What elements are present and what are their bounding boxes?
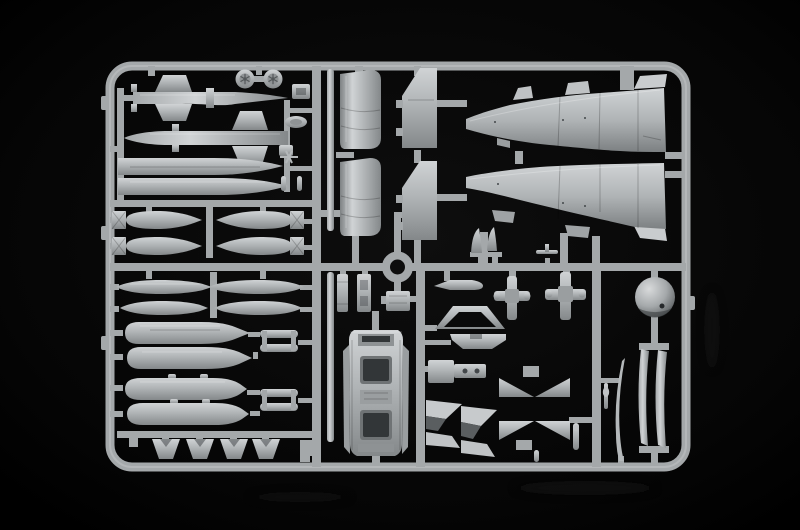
horizontal-runner-mid-center [321, 263, 383, 271]
bomb-mini-runner-2 [210, 272, 217, 318]
sprue-photo-canvas [0, 0, 800, 530]
horizontal-runner-mid-left [110, 263, 313, 271]
vertical-runner-cockpit [416, 267, 425, 467]
horizontal-runner-upper-left [110, 200, 313, 207]
thin-strip-part-top [327, 69, 334, 231]
ring-drop [394, 281, 401, 292]
cockpit-tub [343, 330, 409, 456]
thin-strip-part-bottom [327, 272, 334, 442]
radome-ball [635, 277, 675, 317]
center-console [360, 390, 392, 404]
fuel-tank-large-2 [127, 347, 252, 369]
engine-duct-half-2 [340, 158, 381, 236]
wheel-2 [264, 70, 283, 89]
wheel-1 [236, 70, 255, 89]
engine-duct-half-1 [340, 70, 381, 149]
sprue-photograph [0, 0, 800, 530]
frame-nub [101, 336, 108, 350]
vertical-runner-right [592, 267, 601, 467]
horizontal-runner-mid-right [412, 263, 686, 271]
console-strip-1 [337, 274, 348, 312]
console-strip-2 [357, 274, 371, 312]
frame-nub [101, 96, 108, 110]
fin-rail [117, 431, 316, 438]
ring-riser [394, 212, 401, 254]
bomb-mini-runner-1 [206, 206, 213, 258]
frame-nub [101, 226, 108, 240]
vertical-runner-main [312, 66, 321, 467]
frame-nub [688, 296, 695, 310]
